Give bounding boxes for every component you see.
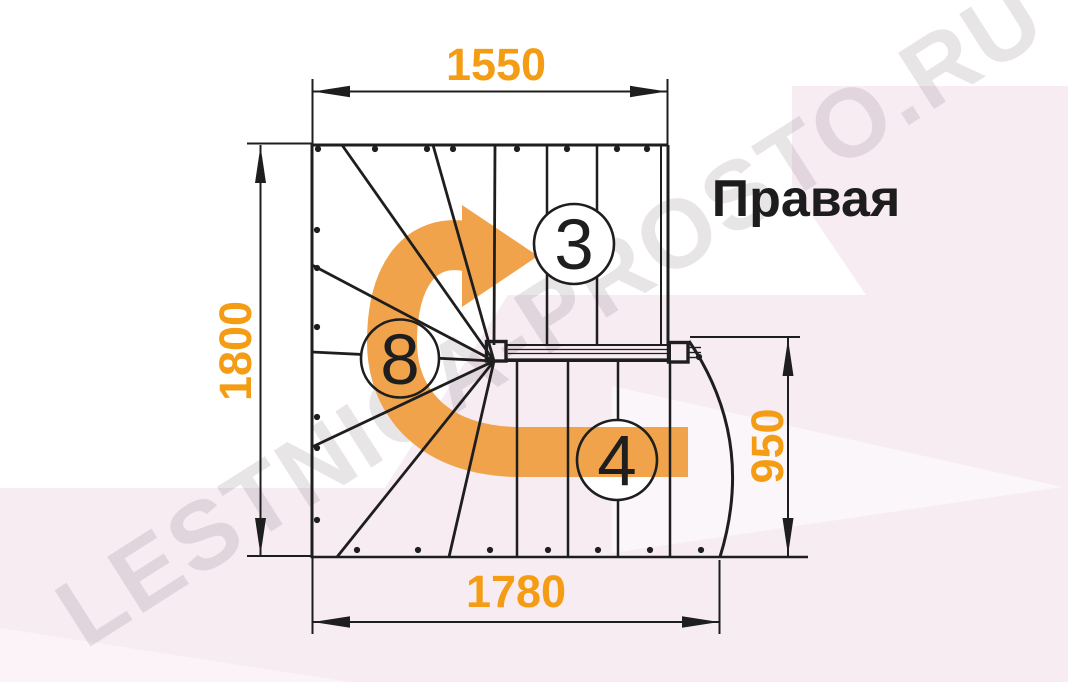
step-number-8: 8 <box>380 321 420 400</box>
dim-right-height-label: 950 <box>742 408 793 483</box>
dim-bottom-width-label: 1780 <box>466 566 566 617</box>
step-number-4: 4 <box>597 422 637 501</box>
dim-top-width-label: 1550 <box>446 39 546 90</box>
stair-side-title: Правая <box>712 170 901 228</box>
stair-plan-svg: LESTNICA-PROSTO.RU <box>0 0 1068 682</box>
dim-left-height-label: 1800 <box>210 301 261 401</box>
stair-plan-canvas: LESTNICA-PROSTO.RU <box>0 0 1068 682</box>
step-number-3: 3 <box>554 206 594 285</box>
